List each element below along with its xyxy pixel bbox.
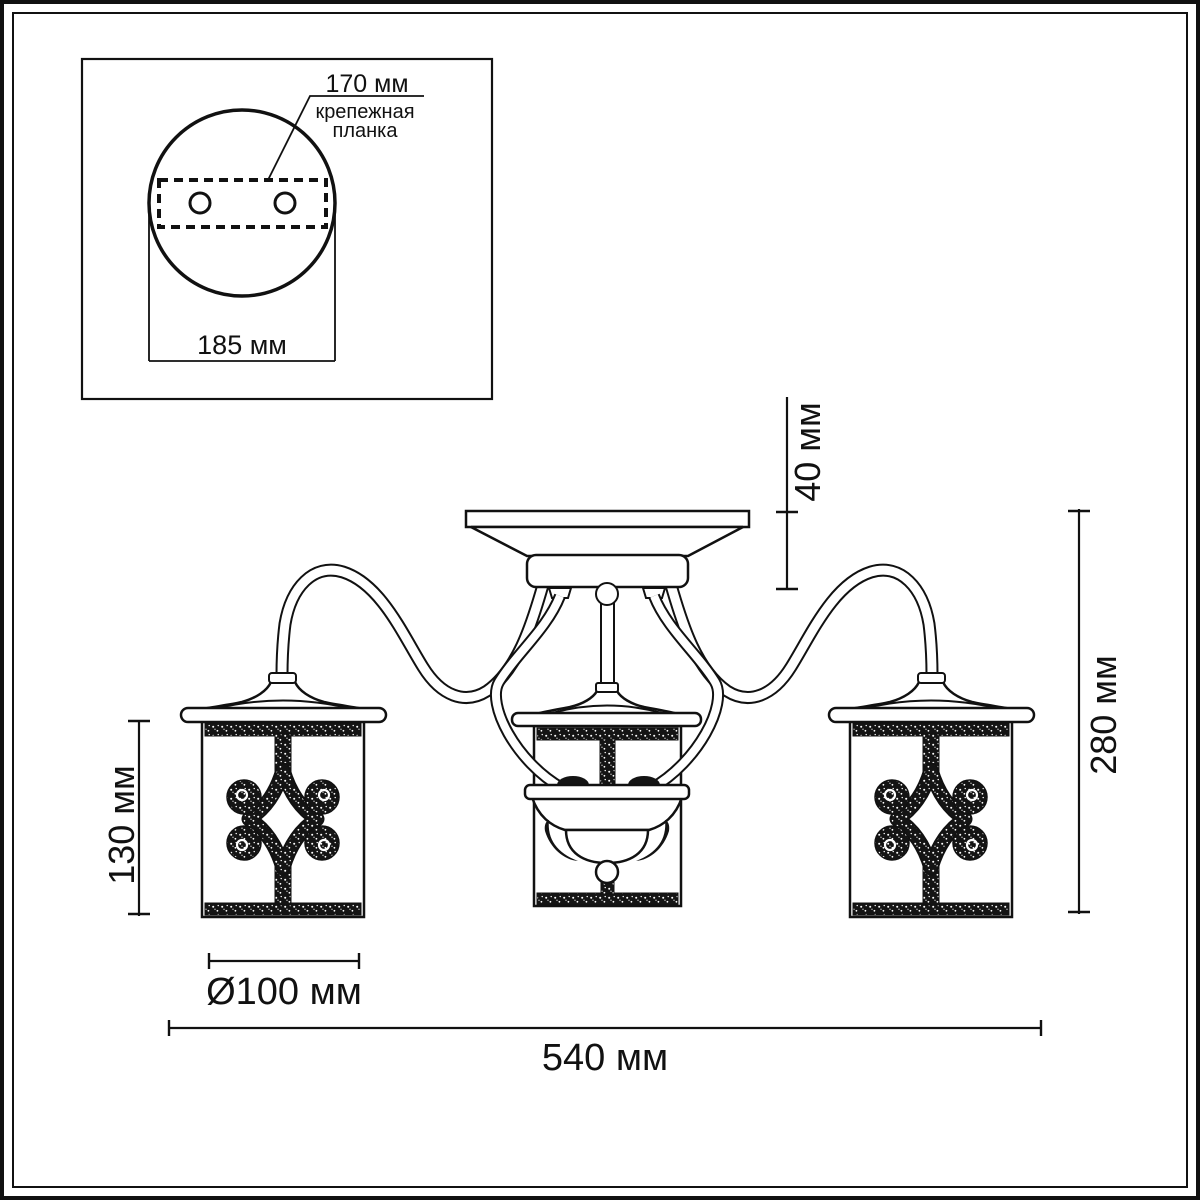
center-finial-ball [596,861,618,883]
right-curl-lower-left [875,826,909,860]
bracket-hole-left [190,193,210,213]
label-lantern-height: 130 мм [101,765,142,885]
left-stem-collar [269,673,296,683]
left-lantern [181,682,386,917]
center-lantern-cap [536,691,678,714]
fixture-drawing: 170 мм крепежная планка 185 мм 40 мм 280… [4,4,1200,1200]
label-bracket-name-line2: планка [333,120,399,142]
center-lantern-mid-band [525,785,689,799]
mounting-plate-inset: 170 мм крепежная планка 185 мм [82,59,492,399]
ceiling-canopy [466,511,749,587]
right-curl-lower-right [953,826,987,860]
left-curl-lower-right [305,826,339,860]
left-curl-lower-left [227,826,261,860]
right-lantern [829,682,1034,917]
left-curl-upper-left [227,780,261,814]
center-lantern-bar-top [600,739,615,786]
left-lantern-cap [197,682,369,710]
mounting-plate-circle [149,110,335,296]
label-lantern-diameter: Ø100 мм [206,971,362,1013]
label-fixture-width: 540 мм [542,1037,668,1079]
right-stem-collar [918,673,945,683]
right-curl-upper-right [953,780,987,814]
right-curl-upper-left [875,780,909,814]
right-lantern-rim [829,708,1034,722]
technical-drawing-page: 170 мм крепежная планка 185 мм 40 мм 280… [0,0,1200,1200]
left-lantern-rim [181,708,386,722]
center-bell-skirt [532,797,682,830]
bracket-hole-right [275,193,295,213]
canopy-plate [466,511,749,527]
rod-collar [596,683,618,692]
canopy-taper [471,527,743,556]
label-plate-width: 185 мм [197,330,287,360]
right-lantern-cap [845,682,1017,710]
label-canopy-height: 40 мм [787,402,828,502]
center-rod [596,583,618,692]
center-lantern-bottom-band [537,893,678,905]
left-curl-upper-right [305,780,339,814]
rod-ball [596,583,618,605]
label-bracket-length: 170 мм [325,70,408,98]
center-lantern-top-band [537,728,678,740]
center-lantern-rim [512,713,701,726]
label-fixture-height: 280 мм [1083,655,1124,775]
rod-shaft [601,597,614,685]
